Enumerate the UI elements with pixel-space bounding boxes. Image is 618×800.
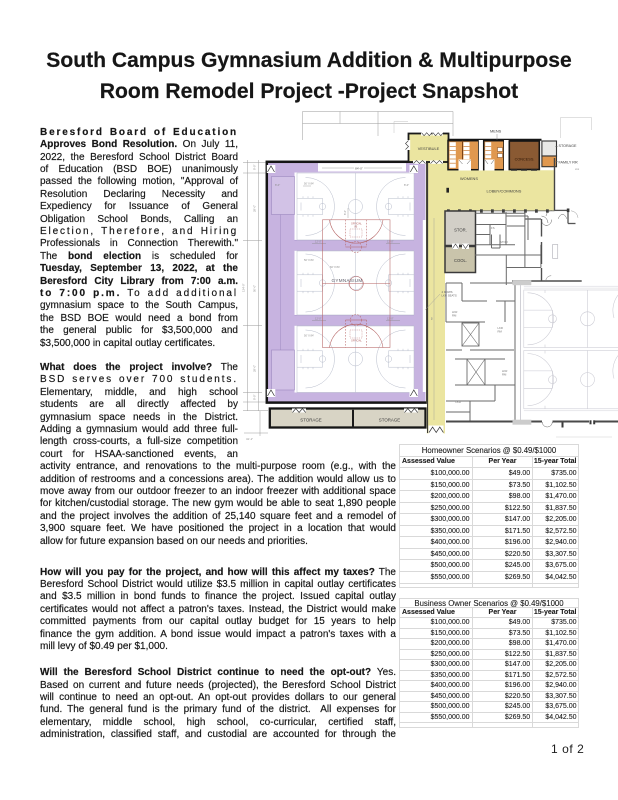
svg-text:28'-0": 28'-0": [253, 365, 257, 372]
svg-text:LKR SEATS: LKR SEATS: [442, 294, 457, 298]
svg-text:LKR: LKR: [456, 400, 461, 404]
svg-text:VESTIBULE: VESTIBULE: [418, 146, 440, 151]
svg-text:RM: RM: [502, 373, 507, 377]
svg-text:6'-0": 6'-0": [343, 210, 347, 215]
svg-text:MENS: MENS: [490, 129, 502, 134]
svg-text:50' X 84': 50' X 84': [304, 334, 314, 338]
svg-text:12'-0": 12'-0": [315, 317, 322, 321]
svg-text:12'-0": 12'-0": [387, 317, 394, 321]
svg-text:8'-0": 8'-0": [275, 183, 280, 187]
svg-text:COOL.: COOL.: [454, 258, 467, 263]
svg-text:STORAGE: STORAGE: [379, 418, 400, 423]
svg-text:xxx: xxx: [575, 167, 580, 171]
svg-text:8'-0": 8'-0": [404, 183, 409, 187]
svg-text:STORAGE: STORAGE: [300, 418, 321, 423]
svg-text:9'-0": 9'-0": [253, 164, 257, 170]
svg-text:STORAGE: STORAGE: [559, 144, 578, 148]
svg-text:28'-0": 28'-0": [253, 205, 257, 212]
svg-text:RM: RM: [498, 330, 503, 334]
svg-text:50' X 84': 50' X 84': [304, 182, 314, 186]
svg-text:STOR: STOR: [500, 240, 508, 244]
svg-text:STOR.: STOR.: [454, 228, 467, 233]
svg-text:84'-0": 84'-0": [355, 167, 363, 171]
svg-text:LOBBY/COMMONS: LOBBY/COMMONS: [487, 189, 522, 194]
svg-text:12'-0": 12'-0": [315, 240, 322, 244]
svg-text:CONCESS.: CONCESS.: [515, 158, 535, 162]
svg-text:134'-0": 134'-0": [242, 283, 246, 292]
svg-text:FAMILY RR: FAMILY RR: [559, 161, 578, 165]
svg-text:50'-0": 50'-0": [253, 285, 257, 292]
svg-text:50' X 84': 50' X 84': [304, 258, 314, 262]
svg-text:OFFICIAL: OFFICIAL: [351, 340, 362, 343]
svg-text:41'-1": 41'-1": [246, 437, 253, 441]
svg-text:9'-0": 9'-0": [253, 394, 257, 400]
svg-text:RM: RM: [452, 314, 457, 318]
svg-text:GYMNASIUM: GYMNASIUM: [331, 278, 362, 283]
svg-text:VB: VB: [354, 226, 358, 229]
svg-text:12'-0": 12'-0": [387, 240, 394, 244]
svg-text:WOMENS: WOMENS: [460, 176, 478, 181]
svg-text:60' X 84': 60' X 84': [330, 265, 340, 269]
svg-text:FS: FS: [491, 226, 495, 230]
